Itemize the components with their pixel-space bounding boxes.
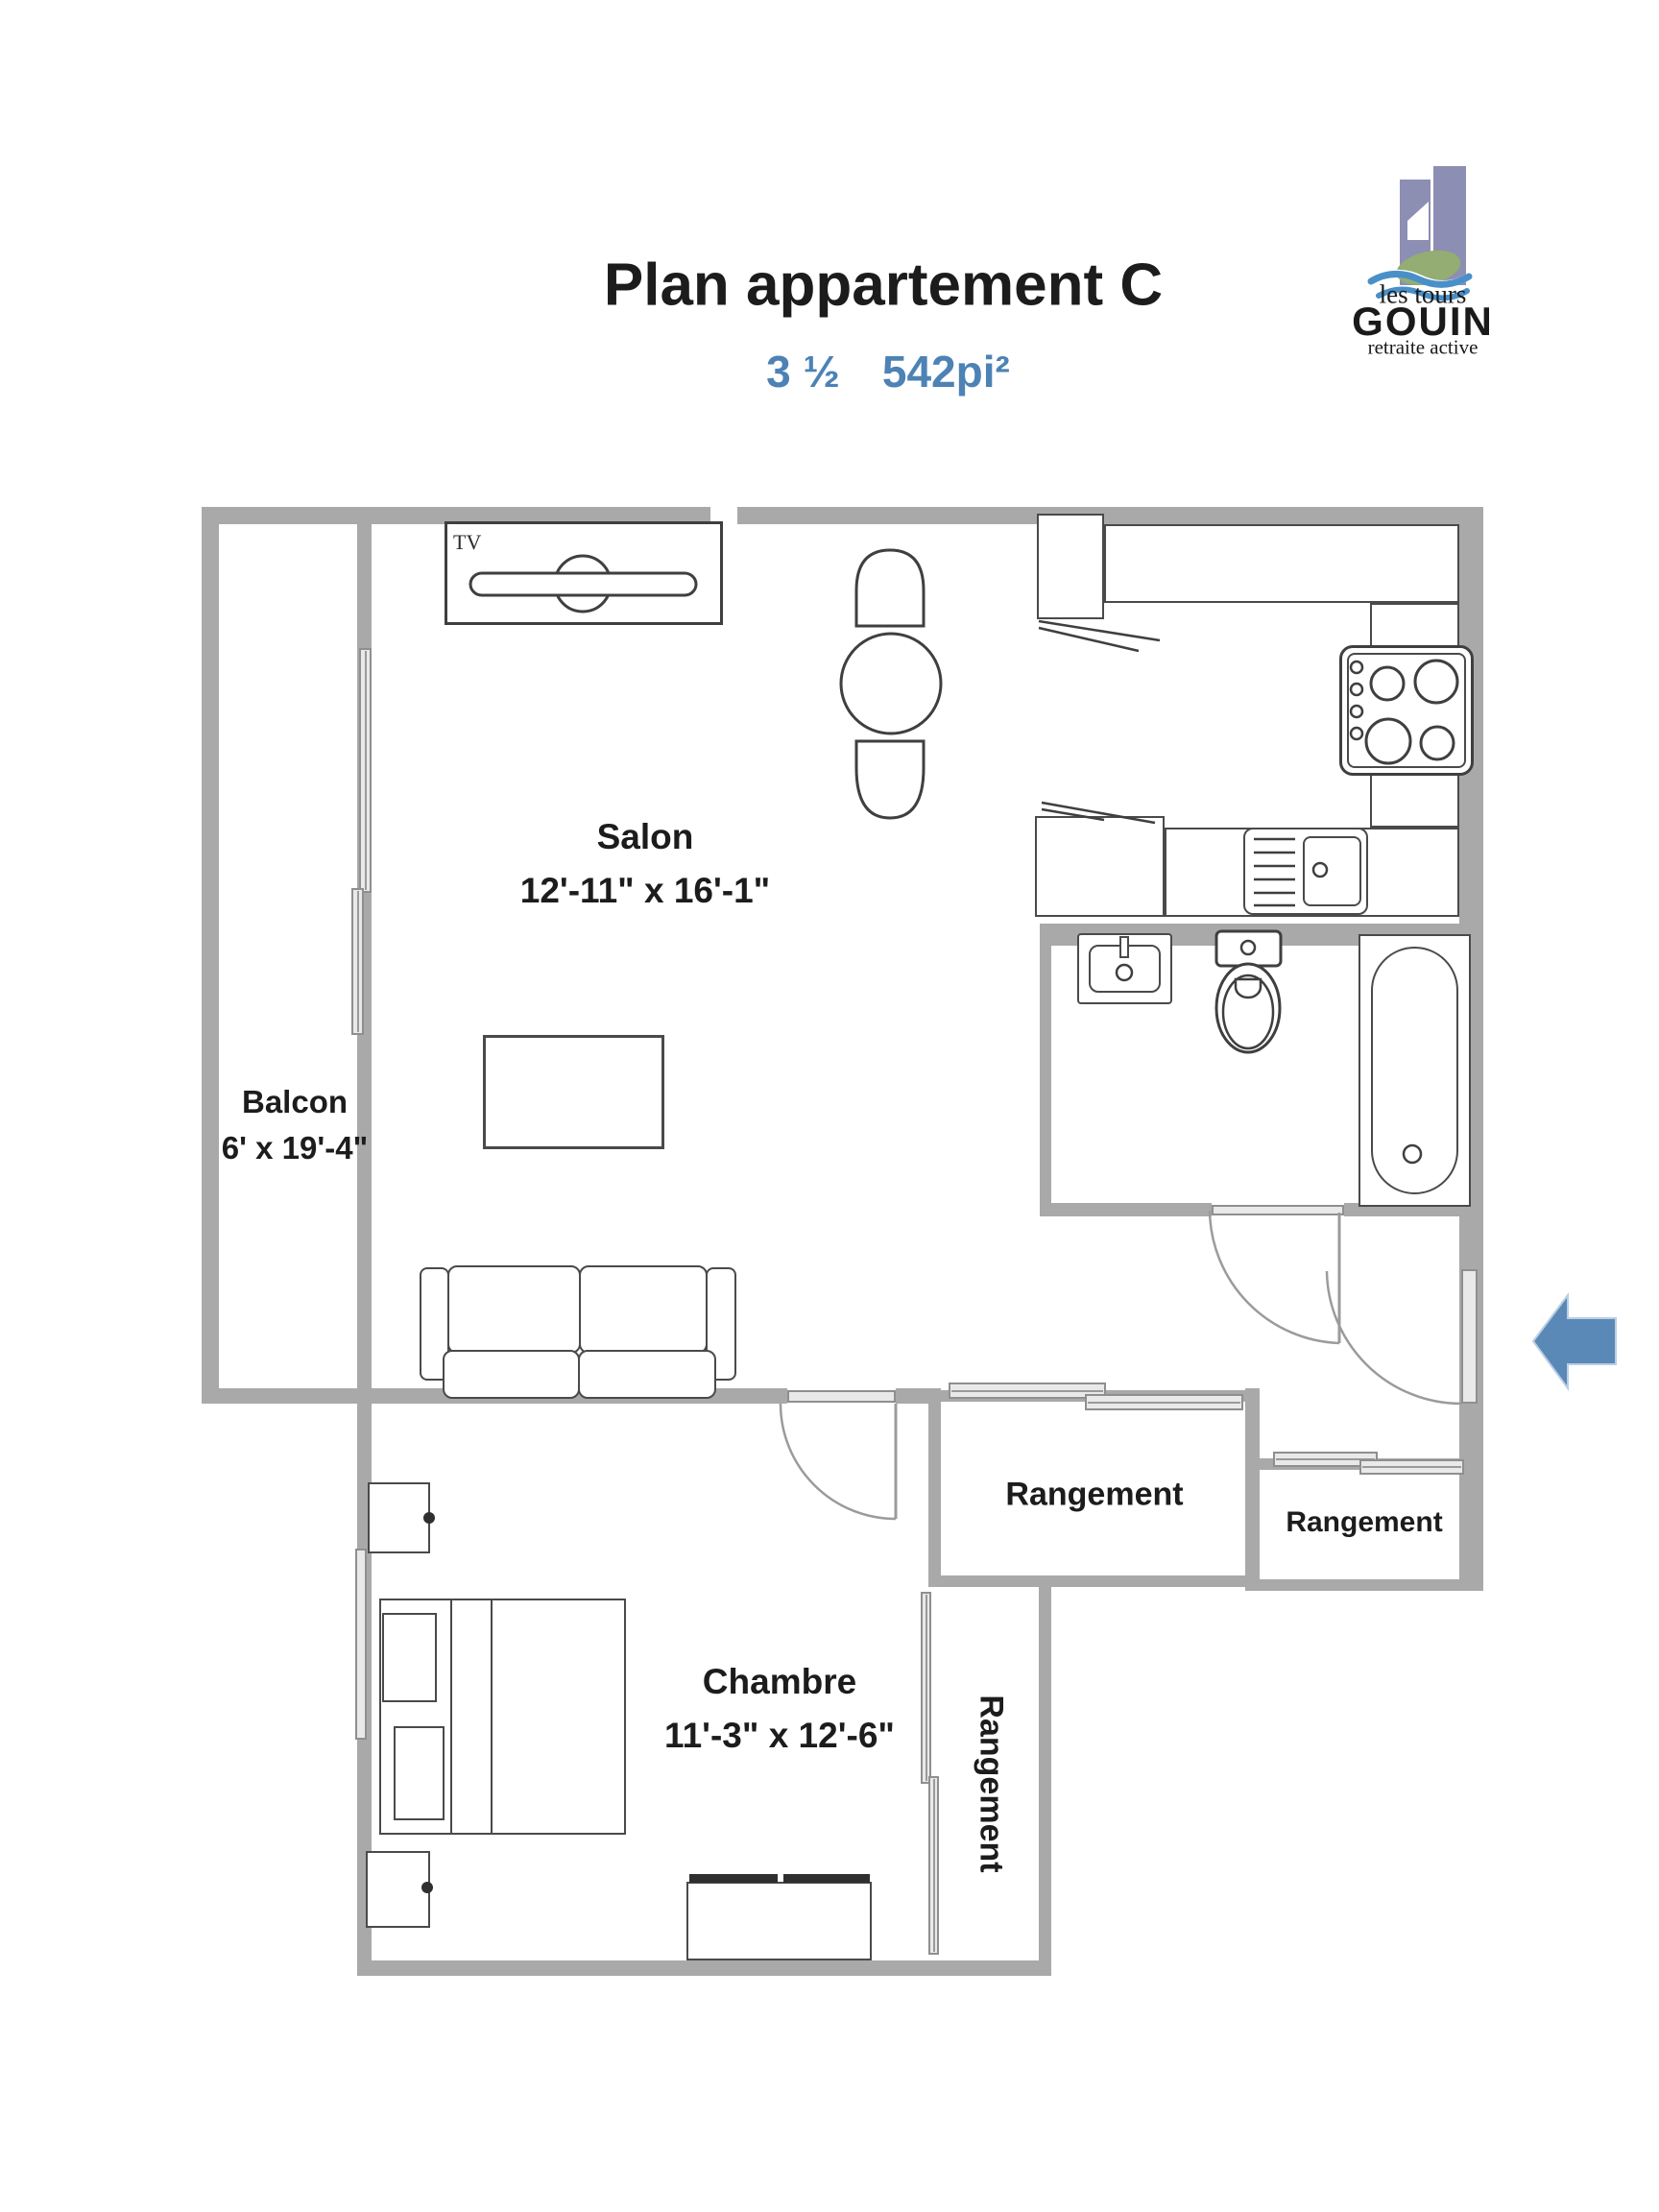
hall-closet-bifold-door-1 (949, 1382, 1106, 1399)
entrance-arrow-icon (1533, 1295, 1616, 1388)
wall-bathroom-left (1040, 924, 1051, 1216)
kitchen-cabinet (1035, 816, 1165, 917)
wall-closet-bedroom-right (1039, 1587, 1051, 1976)
wall-closet-hall-bottom (928, 1575, 1260, 1587)
entrance-door-leaf (1461, 1269, 1478, 1404)
wall-closet-hall-right (1245, 1388, 1260, 1591)
chambre-dimensions: 11'-3" x 12'-6" (664, 1716, 895, 1756)
logo-tagline-text: retraite active (1368, 336, 1479, 360)
stove-cooktop (1347, 653, 1466, 768)
page-subtitle: 3 ½542pi² (745, 346, 1031, 397)
dining-table (841, 634, 941, 733)
bathtub-basin (1371, 947, 1458, 1194)
fridge-door-swing-line-1 (1039, 621, 1160, 640)
dresser (686, 1882, 872, 1960)
bed-pillow-1 (382, 1613, 437, 1702)
rangement-hall-label: Rangement (1005, 1477, 1183, 1514)
nightstand-top (368, 1482, 430, 1553)
entry-closet-bifold-door-2 (1359, 1459, 1464, 1475)
coffee-table (483, 1035, 664, 1149)
kitchen-counter-top (1104, 524, 1459, 603)
wall-balcony-bottom (202, 1388, 372, 1404)
salon-dimensions: 12'-11" x 16'-1" (520, 871, 770, 911)
toilet-bowl (1216, 964, 1280, 1052)
wall-chambre-bottom (357, 1960, 1051, 1976)
fridge-door-swing-line-2 (1039, 628, 1139, 651)
toilet-seat (1223, 975, 1273, 1048)
unit-area: 542pi² (882, 347, 1010, 397)
chambre-door-swing-arc (781, 1404, 896, 1519)
sofa-back-cushion-left (447, 1265, 581, 1354)
chambre-label: Chambre (703, 1662, 856, 1702)
dining-chair-bottom (856, 741, 924, 818)
hall-closet-bifold-door-2 (1085, 1394, 1243, 1410)
bed-pillow-2 (394, 1726, 445, 1820)
dresser-top-edge-2 (783, 1874, 870, 1883)
wall-top-right (737, 507, 1483, 524)
bathroom-door-sill (1212, 1205, 1344, 1215)
sofa-back-cushion-right (579, 1265, 708, 1354)
balcony-door-panel-2 (351, 888, 364, 1035)
sofa-seat-cushion-left (443, 1350, 580, 1399)
wall-closet-hall-left (928, 1388, 941, 1587)
dresser-top-edge-1 (689, 1874, 778, 1883)
toilet-flush-shape (1236, 979, 1261, 998)
chambre-window (355, 1549, 367, 1740)
unit-size: 3 ½ (766, 347, 840, 397)
balcon-label: Balcon (242, 1084, 348, 1120)
bathroom-sink-faucet (1119, 936, 1129, 958)
bathroom-door-swing-arc (1210, 1211, 1339, 1343)
balcon-dimensions: 6' x 19'-4" (222, 1130, 368, 1166)
rangement-entry-label: Rangement (1286, 1506, 1442, 1539)
wall-closet-entry-bottom (1245, 1579, 1483, 1591)
tv-label: TV (453, 530, 481, 555)
logo: les tours GOUIN retraite active (1344, 149, 1546, 370)
page-title: Plan appartement C (604, 252, 1163, 320)
wall-left-outer (202, 507, 219, 1404)
fridge (1037, 514, 1104, 619)
sofa-seat-cushion-right (578, 1350, 716, 1399)
tv-cabinet (445, 521, 723, 625)
wall-bathroom-bottom-left (1040, 1203, 1212, 1216)
salon-label: Salon (597, 817, 694, 857)
nightstand-bottom (366, 1851, 430, 1928)
bedroom-closet-sliding-door-1 (921, 1592, 931, 1784)
balcony-door-panel-1 (359, 648, 372, 893)
chambre-door-sill (787, 1390, 896, 1403)
bedroom-closet-sliding-door-2 (928, 1776, 939, 1955)
kitchen-sink-basin (1303, 836, 1361, 906)
rangement-bedroom-label: Rangement (973, 1695, 1010, 1872)
entrance-door-swing-arc (1327, 1271, 1461, 1404)
dining-chair-top (856, 550, 924, 626)
